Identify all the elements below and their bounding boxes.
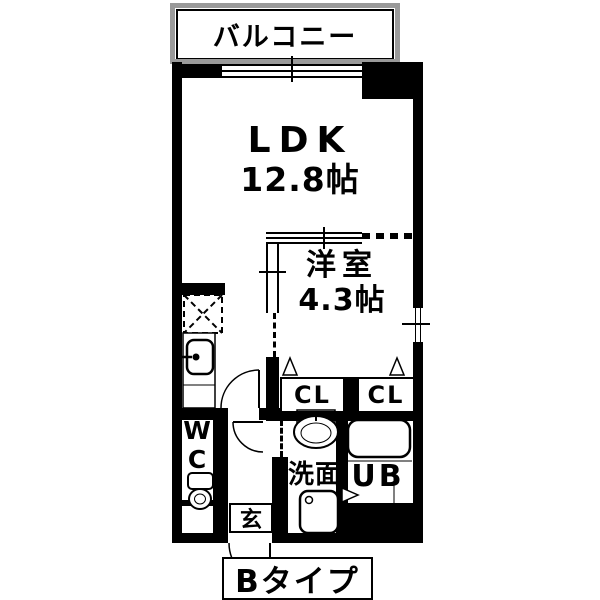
entrance-step-line (277, 505, 279, 533)
western-room-size: 4.3帖 (283, 284, 401, 319)
western-room-label: 洋室 4.3帖 (283, 249, 401, 318)
unit-bath-label: UB (346, 459, 410, 494)
plan-type-box: Bタイプ (222, 557, 373, 600)
ldk-size: 12.8帖 (190, 161, 410, 199)
ldk-door-arc (221, 370, 259, 408)
entrance-box: 玄 (229, 503, 273, 533)
washing-machine-icon (300, 491, 338, 533)
toilet-icon (188, 473, 213, 509)
western-room-name: 洋室 (283, 249, 401, 284)
toilet-room-label: W C (181, 416, 213, 474)
ldk-name: LDK (190, 120, 410, 161)
floor-plan: バルコニー CL CL (0, 0, 600, 600)
ldk-label: LDK 12.8帖 (190, 120, 410, 199)
entrance-label: 玄 (240, 502, 262, 534)
toilet-letter-c: C (181, 445, 213, 474)
washroom-label: 洗面 (281, 454, 349, 491)
washbasin-icon (294, 410, 338, 448)
toilet-letter-w: W (181, 416, 213, 445)
plan-type-label: Bタイプ (235, 556, 360, 600)
refrigerator-space-icon (184, 295, 222, 333)
kitchen-sink-icon (181, 333, 215, 408)
hall-door-arc (233, 422, 263, 452)
